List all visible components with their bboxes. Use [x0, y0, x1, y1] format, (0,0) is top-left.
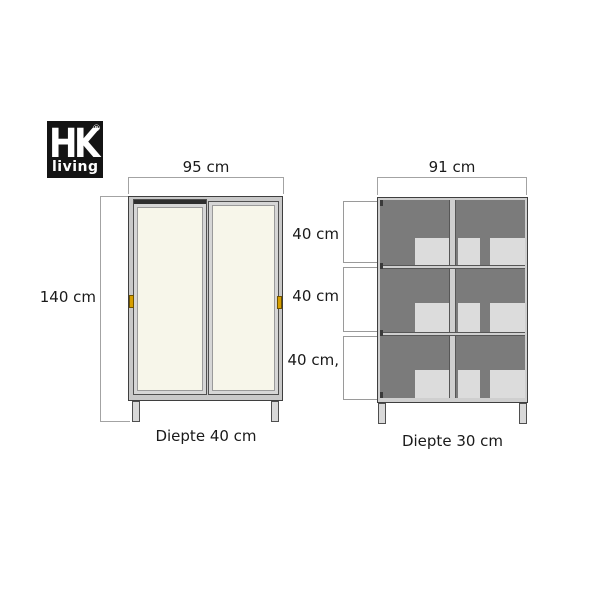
cabinet-interior [380, 200, 525, 398]
shelf-content-block [458, 370, 480, 398]
door-top-rail [134, 200, 206, 204]
right-cabinet-width-bracket [377, 177, 527, 195]
hinge-mark [380, 392, 383, 398]
section-height-label: 40 cm [278, 287, 339, 305]
shelf-content-block [458, 303, 480, 332]
shelf-content-block [415, 370, 450, 398]
section-height-bracket [343, 267, 377, 332]
section-height-label: 40 cm, [278, 351, 339, 369]
display-cabinet-frame [377, 197, 528, 403]
hkliving-logo: HK ® living [47, 121, 103, 178]
section-height-bracket [343, 201, 377, 263]
shelf-content-block [490, 238, 525, 265]
sliding-door-right [208, 201, 279, 395]
right-cabinet-width-label: 91 cm [377, 158, 527, 176]
shelf-divider [380, 332, 525, 336]
shelf-content-block [490, 370, 525, 398]
left-cabinet-height-bracket [100, 196, 130, 422]
door-handle-icon [129, 295, 134, 308]
shelf-content-block [490, 303, 525, 332]
cabinet-leg [132, 401, 140, 422]
left-cabinet-height-label: 140 cm [28, 288, 96, 306]
cabinet-leg [271, 401, 279, 422]
left-cabinet-depth-label: Diepte 40 cm [128, 427, 284, 445]
logo-brand-text: HK [49, 124, 97, 164]
shelf-content-block [415, 303, 450, 332]
hinge-mark [380, 330, 383, 336]
registered-trademark-icon: ® [92, 124, 101, 134]
cabinet-leg [519, 403, 527, 424]
right-cabinet-depth-label: Diepte 30 cm [377, 432, 528, 450]
hinge-mark [380, 200, 383, 206]
cabinet-leg [378, 403, 386, 424]
logo-sub-text: living [52, 159, 99, 175]
wardrobe-frame [128, 196, 283, 401]
section-height-bracket [343, 336, 377, 400]
shelf-content-block [415, 238, 450, 265]
door-panel-left [137, 207, 203, 391]
section-height-label: 40 cm [278, 225, 339, 243]
sliding-door-left [133, 199, 207, 395]
left-cabinet-width-label: 95 cm [128, 158, 284, 176]
product-dimension-diagram: HK ® living 95 cm 140 cm Diepte 40 cm 91… [0, 0, 600, 600]
shelf-divider [380, 265, 525, 269]
cabinet-vertical-divider [449, 200, 456, 398]
shelf-content-block [458, 238, 480, 265]
door-panel-right [212, 205, 275, 391]
left-cabinet-width-bracket [128, 177, 284, 194]
hinge-mark [380, 263, 383, 269]
